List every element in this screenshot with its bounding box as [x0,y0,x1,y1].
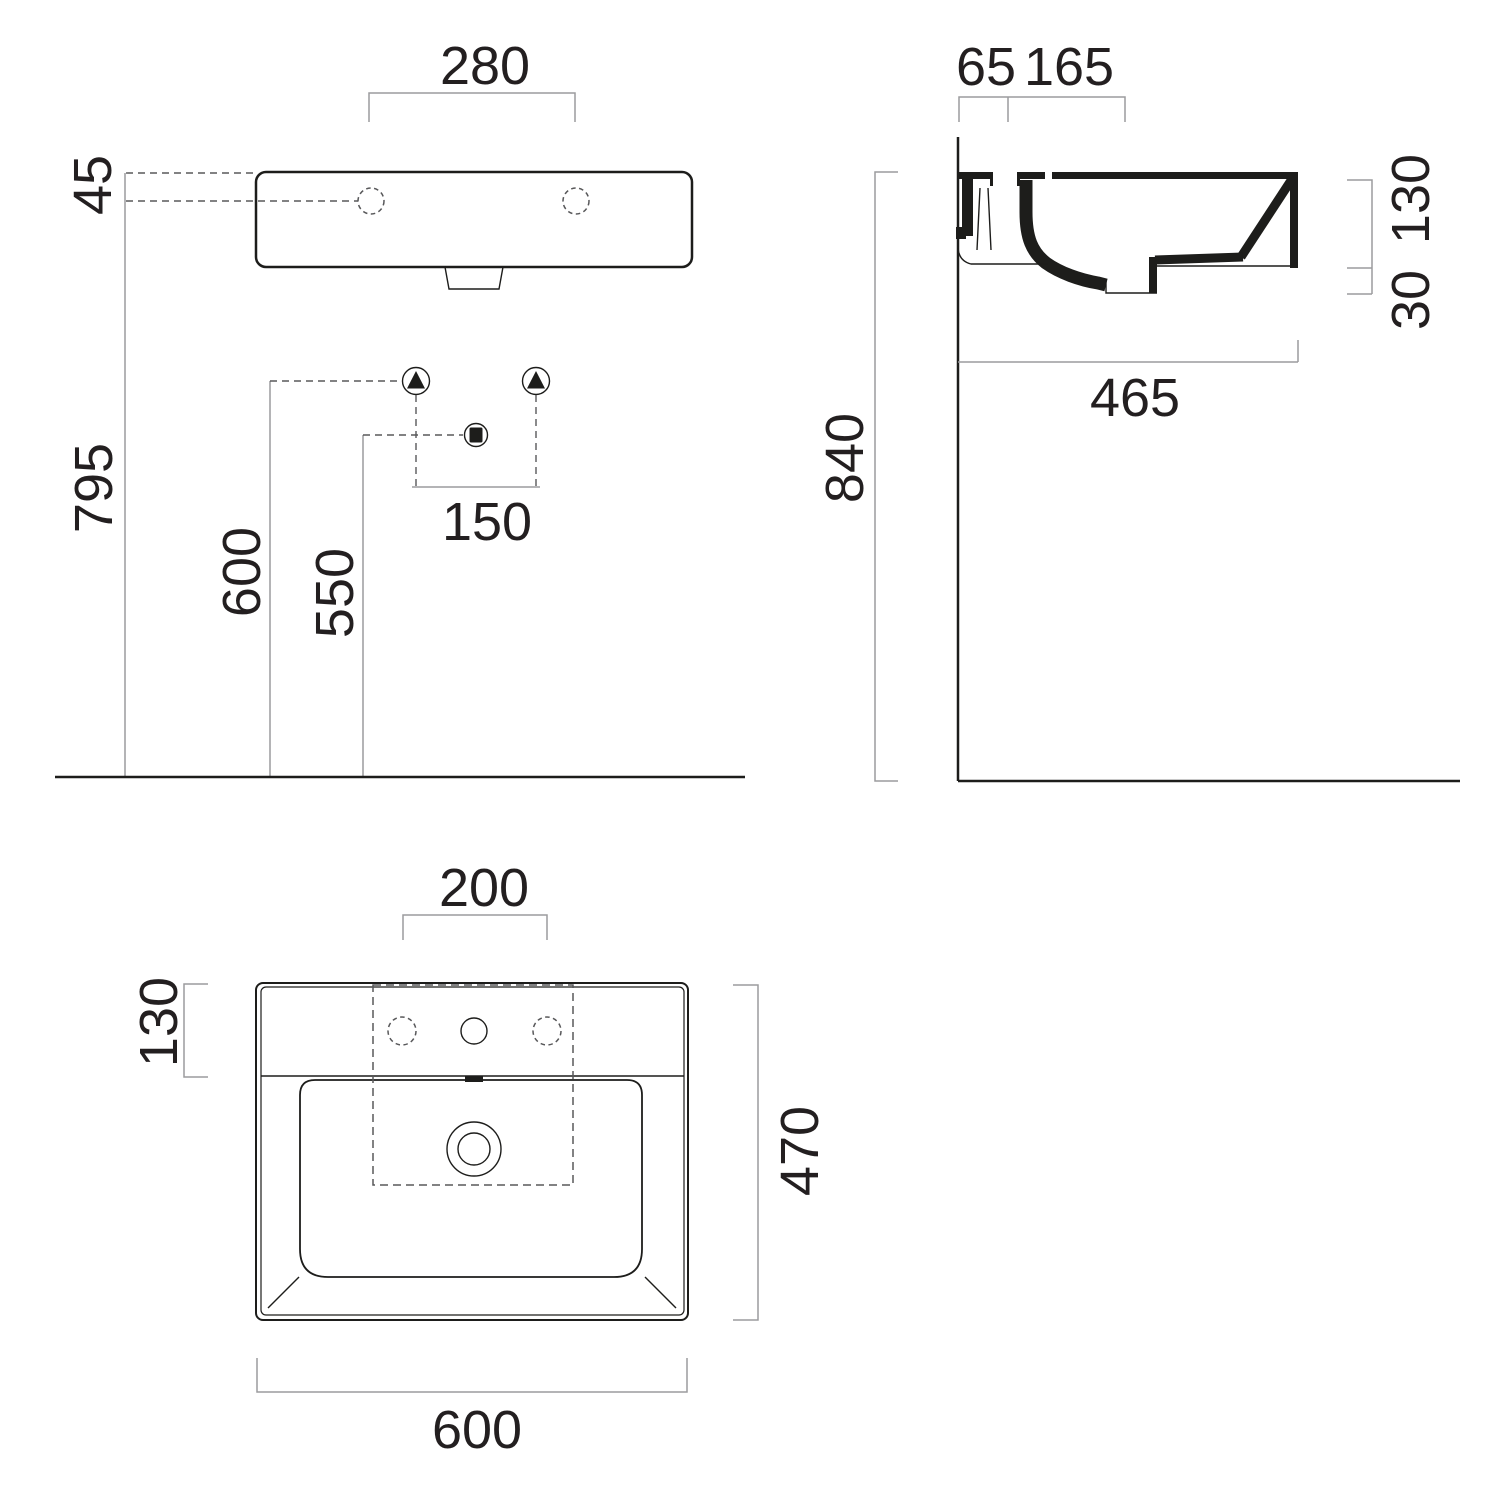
dim-basin-depth-label: 465 [1090,368,1180,428]
plan-faucet-hole-left [388,1017,416,1045]
plan-bowl-outline [300,1080,642,1277]
plan-corner-line-left [268,1277,299,1308]
dim-basin-height-label: 130 [1381,154,1441,244]
rim-surface-left [958,172,993,179]
triangle-icon [407,371,425,389]
plan-faucet-hole-center [461,1018,487,1044]
plan-drain-outer [447,1122,501,1176]
drain-right-wall [1149,257,1157,293]
rim-surface-mid [1017,172,1045,179]
dim-plan-depth-bracket [733,985,758,1320]
basin-section-profile [956,172,1298,293]
dim-height-bracket [1347,180,1372,294]
plan-faucet-hole-right [533,1017,561,1045]
waste-symbol [465,424,488,447]
dim-supply-spacing-label: 150 [442,492,532,552]
dim-floor-to-hole-label: 795 [64,443,124,533]
dim-floor-to-rim-line [875,172,898,781]
bowl-back-slope [1241,179,1292,257]
supply-symbol-left [403,368,430,395]
plan-drain-inner [458,1133,490,1165]
triangle-icon [527,371,545,389]
dim-floor-to-supply-label: 600 [212,527,272,617]
front-basin-outline [256,172,692,267]
wall-flange-foot [956,227,966,239]
technical-drawing-canvas: 280 45 795 600 550 [0,0,1500,1500]
plan-corner-line-right [645,1277,676,1308]
dim-plan-depth-label: 470 [770,1106,830,1196]
dim-hole-spacing-label: 200 [439,858,529,918]
trap-curve [1026,180,1106,285]
front-faucet-hole-left [358,188,384,214]
front-faucet-hole-right [563,188,589,214]
dim-plan-width-label: 600 [432,1400,522,1460]
dim-wall-to-hole-label: 65 [956,37,1016,97]
dim-65-165-bracket [959,97,1125,122]
plan-tap-platform-dashed [373,985,573,1185]
dim-faucet-spacing-bracket [369,93,575,122]
dim-floor-to-drain-label: 550 [305,548,365,638]
front-view: 280 45 795 600 550 [55,36,745,777]
plan-view: 200 130 470 600 [129,858,830,1460]
dim-hole-spacing-bracket [403,915,547,940]
dim-plan-width-bracket [257,1358,687,1392]
dim-faucet-spacing-label: 280 [440,36,530,96]
dim-hole-to-overflow-label: 165 [1024,37,1114,97]
dim-drain-depth-label: 30 [1381,270,1441,330]
overflow-channel [977,188,991,250]
dim-floor-to-rim-label: 840 [815,413,875,503]
side-view: 65 165 [815,37,1460,781]
technical-drawing-sheet: 280 45 795 600 550 [0,0,1500,1500]
dim-rim-to-bowl-label: 130 [129,977,189,1067]
dim-rim-to-hole-label: 45 [63,155,123,215]
plan-overflow-mark [465,1076,483,1082]
bowl-bottom [1155,257,1243,260]
plan-outer-outline [256,983,688,1320]
supply-symbol-right [523,368,550,395]
square-icon [470,428,483,443]
plan-inner-outline [261,987,684,1315]
dim-basin-depth-line [958,340,1298,362]
front-drain-stub [445,267,503,289]
rim-surface-right [1052,172,1298,179]
hole-edge-stub-left [990,179,993,186]
